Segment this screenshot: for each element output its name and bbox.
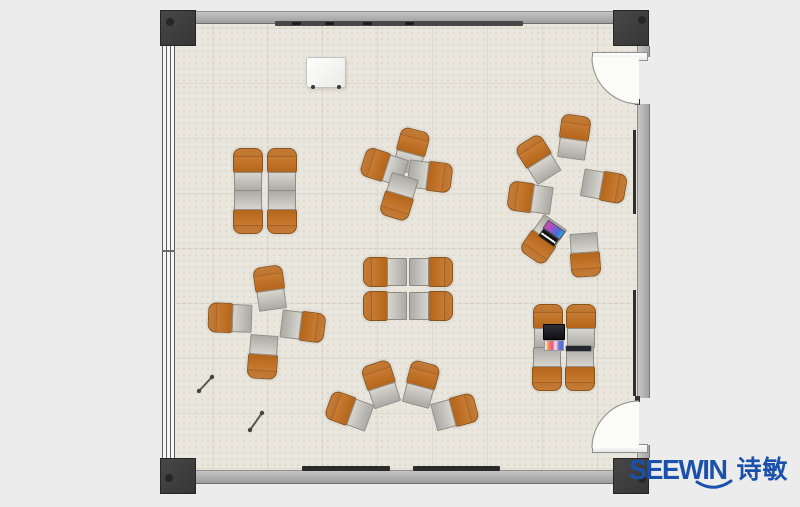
structural-column-2 xyxy=(160,458,196,494)
floor-plan-canvas: SEEWIN 诗敏 xyxy=(0,0,800,507)
desk-chair-unit xyxy=(231,189,265,235)
brand-name-cn: 诗敏 xyxy=(736,455,788,485)
door-jamb-top-right xyxy=(635,99,640,105)
window-mullions xyxy=(162,46,163,458)
desk-top xyxy=(232,304,253,333)
wall-tray-1 xyxy=(413,466,500,471)
tablet-on-desk xyxy=(566,346,591,351)
chair xyxy=(363,257,389,287)
chair xyxy=(233,148,263,174)
flipchart-foot xyxy=(311,85,315,89)
door-leaf-bottom-right xyxy=(592,444,648,453)
desk-chair-unit xyxy=(206,300,253,336)
laptop-keyboard xyxy=(544,340,564,351)
door-leaf-top-right xyxy=(592,52,648,61)
logo-smile-icon xyxy=(693,479,735,494)
chair xyxy=(427,291,453,321)
desk-top xyxy=(249,334,278,356)
desk-top xyxy=(569,232,598,254)
door-jamb-bottom-right xyxy=(635,396,640,402)
desk-chair-unit xyxy=(408,289,454,323)
desk-chair-unit xyxy=(566,231,603,279)
desk-chair-unit xyxy=(278,306,328,345)
laptop-screen xyxy=(543,324,565,340)
chair xyxy=(532,365,562,391)
desk-top xyxy=(567,328,595,348)
desk-top xyxy=(409,258,429,286)
bottom-wall xyxy=(196,470,613,484)
board-marker xyxy=(325,22,334,25)
desk-chair-unit xyxy=(265,189,299,235)
flipchart-foot xyxy=(337,85,341,89)
column-anchor-dot xyxy=(638,16,646,24)
right-wall-segment-1 xyxy=(637,104,650,398)
board-marker xyxy=(405,22,414,25)
right-wall-dark-strip-1 xyxy=(633,290,636,396)
left-window-wall xyxy=(162,46,175,458)
chair xyxy=(570,250,602,278)
board-marker xyxy=(363,22,372,25)
chair xyxy=(267,208,297,234)
desk-chair-unit xyxy=(505,178,555,218)
chair xyxy=(247,352,279,380)
chair xyxy=(565,365,595,391)
desk-chair-unit xyxy=(362,255,408,289)
desk-chair-unit xyxy=(563,346,597,392)
column-anchor-dot xyxy=(165,474,173,482)
flipchart-board xyxy=(306,57,346,88)
right-wall-dark-strip-0 xyxy=(633,130,636,214)
desk-chair-unit xyxy=(265,147,299,193)
desk-chair-unit xyxy=(244,333,281,381)
whiteboard-rail xyxy=(275,21,523,26)
board-marker xyxy=(292,22,301,25)
chair xyxy=(233,208,263,234)
wall-tray-0 xyxy=(302,466,390,471)
desk-top xyxy=(279,309,302,339)
column-anchor-dot xyxy=(166,18,174,26)
window-frame-joint xyxy=(162,250,175,252)
desk-chair-unit xyxy=(564,303,598,349)
structural-column-1 xyxy=(613,10,649,46)
chair xyxy=(267,148,297,174)
open-laptop-on-desk xyxy=(543,324,565,351)
chair xyxy=(207,302,234,333)
desk-top xyxy=(387,292,407,320)
brand-logo: SEEWIN 诗敏 xyxy=(627,455,788,485)
desk-chair-unit xyxy=(408,255,454,289)
chair xyxy=(566,304,596,330)
chair xyxy=(427,257,453,287)
desk-chair-unit xyxy=(554,112,594,162)
desk-top xyxy=(234,190,262,210)
chair xyxy=(363,291,389,321)
desk-top xyxy=(409,292,429,320)
desk-top xyxy=(557,137,588,161)
desk-chair-unit xyxy=(530,346,564,392)
desk-chair-unit xyxy=(362,289,408,323)
desk-top xyxy=(387,258,407,286)
structural-column-0 xyxy=(160,10,196,46)
desk-top xyxy=(268,190,296,210)
desk-chair-unit xyxy=(231,147,265,193)
